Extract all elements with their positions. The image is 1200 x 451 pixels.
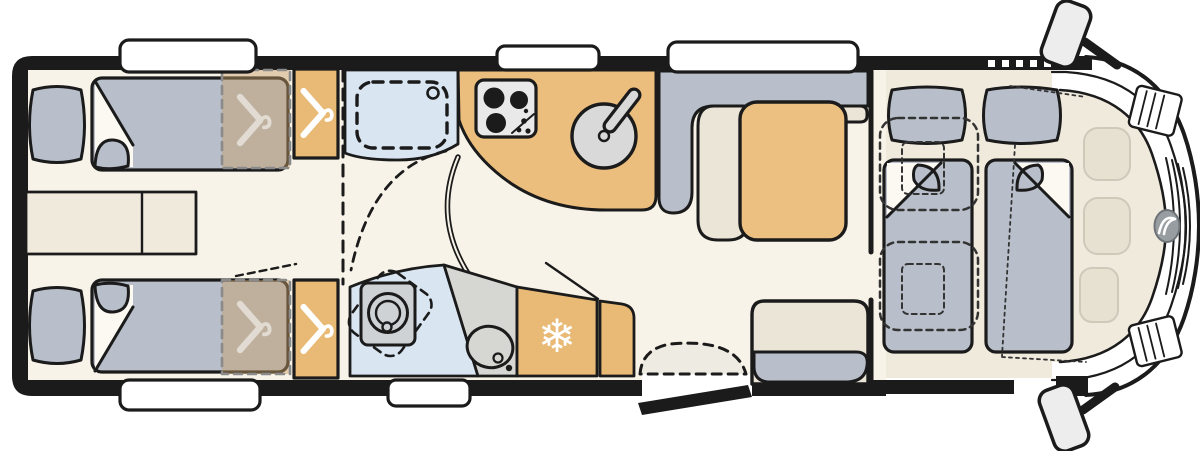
swivel-toilet-icon [361,283,415,345]
window-kitchen [497,46,599,70]
pillow [889,87,966,144]
motorhome-floorplan: ❄ [0,0,1200,451]
basin-drain-dot [506,365,512,371]
shower-drain-icon [428,88,439,99]
pillow [30,87,85,163]
dashboard-ghost [1080,268,1118,322]
wing-mirror-bottom [1036,382,1115,451]
side-bench-cushion [754,352,867,382]
duvet-fold-lobe [95,283,128,312]
window-rear-bottom [120,380,260,410]
wing-mirror-top [1038,0,1117,70]
window-rear-top [120,40,256,72]
duvet-left [884,160,972,352]
bottom-wall-extension [880,380,1014,394]
dashboard-ghost [1084,198,1130,254]
between-beds-chest [26,192,196,254]
stove-burners-icon [476,80,536,137]
duvet-fold-lobe [95,140,128,169]
pillow [984,87,1061,144]
dashboard-ghost [1084,128,1130,180]
window-washroom [388,380,470,406]
dinette-table [740,102,846,240]
snowflake-icon: ❄ [538,309,577,363]
end-cabinet [600,301,634,376]
floorplan-svg: ❄ [0,0,1200,451]
pillow [30,288,85,364]
window-dinette [668,42,858,72]
duvet-right [986,160,1072,352]
